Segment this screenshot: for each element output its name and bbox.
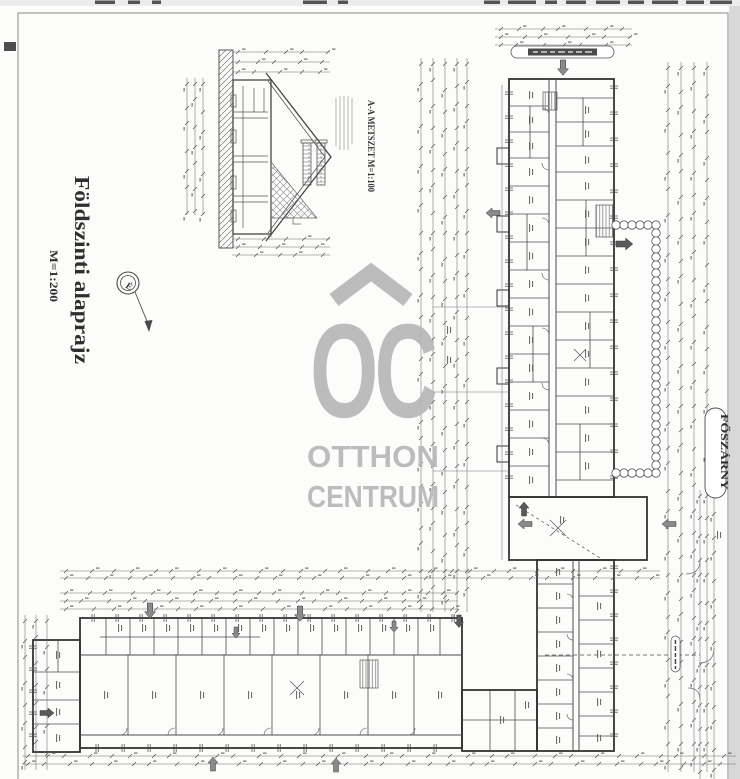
svg-text:OC: OC bbox=[310, 296, 436, 445]
hedge-border bbox=[612, 221, 660, 477]
watermark-line1: OTTHON bbox=[307, 439, 439, 474]
entrance-arrow-icon bbox=[518, 519, 532, 529]
entrance-arrow-icon bbox=[519, 502, 529, 516]
watermark-line2: CENTRUM bbox=[307, 479, 439, 514]
north-compass-icon: É bbox=[117, 272, 153, 332]
notes-block-illegible bbox=[336, 96, 352, 150]
oc-logo-icon: OC bbox=[310, 272, 436, 445]
entrance-arrow-icon bbox=[390, 621, 398, 632]
entrance-arrow-icon bbox=[331, 758, 341, 772]
scanned-floor-plan-page: Földszinti alaprajz M=1:200 É bbox=[0, 0, 740, 779]
wing-label-capsule: FŐSZÁRNY bbox=[705, 408, 730, 498]
entrance-arrow-icon bbox=[295, 606, 306, 621]
svg-text:FŐSZÁRNY: FŐSZÁRNY bbox=[718, 414, 730, 490]
street-label-capsule bbox=[511, 46, 614, 58]
section-title: A-A METSZET M=1:100 bbox=[366, 100, 376, 192]
section-drawing: A-A METSZET M=1:100 bbox=[219, 50, 376, 248]
page-title: Földszinti alaprajz bbox=[70, 176, 94, 364]
entrance-arrow-icon bbox=[616, 238, 633, 250]
entrance-arrow-icon bbox=[558, 60, 569, 75]
floor-plan-drawing: Földszinti alaprajz M=1:200 É bbox=[0, 0, 740, 779]
watermark-otthon-centrum: OC OTTHON CENTRUM bbox=[307, 272, 439, 514]
scale-label: M=1:200 bbox=[47, 250, 61, 302]
entrance-arrow-icon bbox=[662, 519, 676, 529]
side-label-capsule bbox=[671, 636, 680, 672]
